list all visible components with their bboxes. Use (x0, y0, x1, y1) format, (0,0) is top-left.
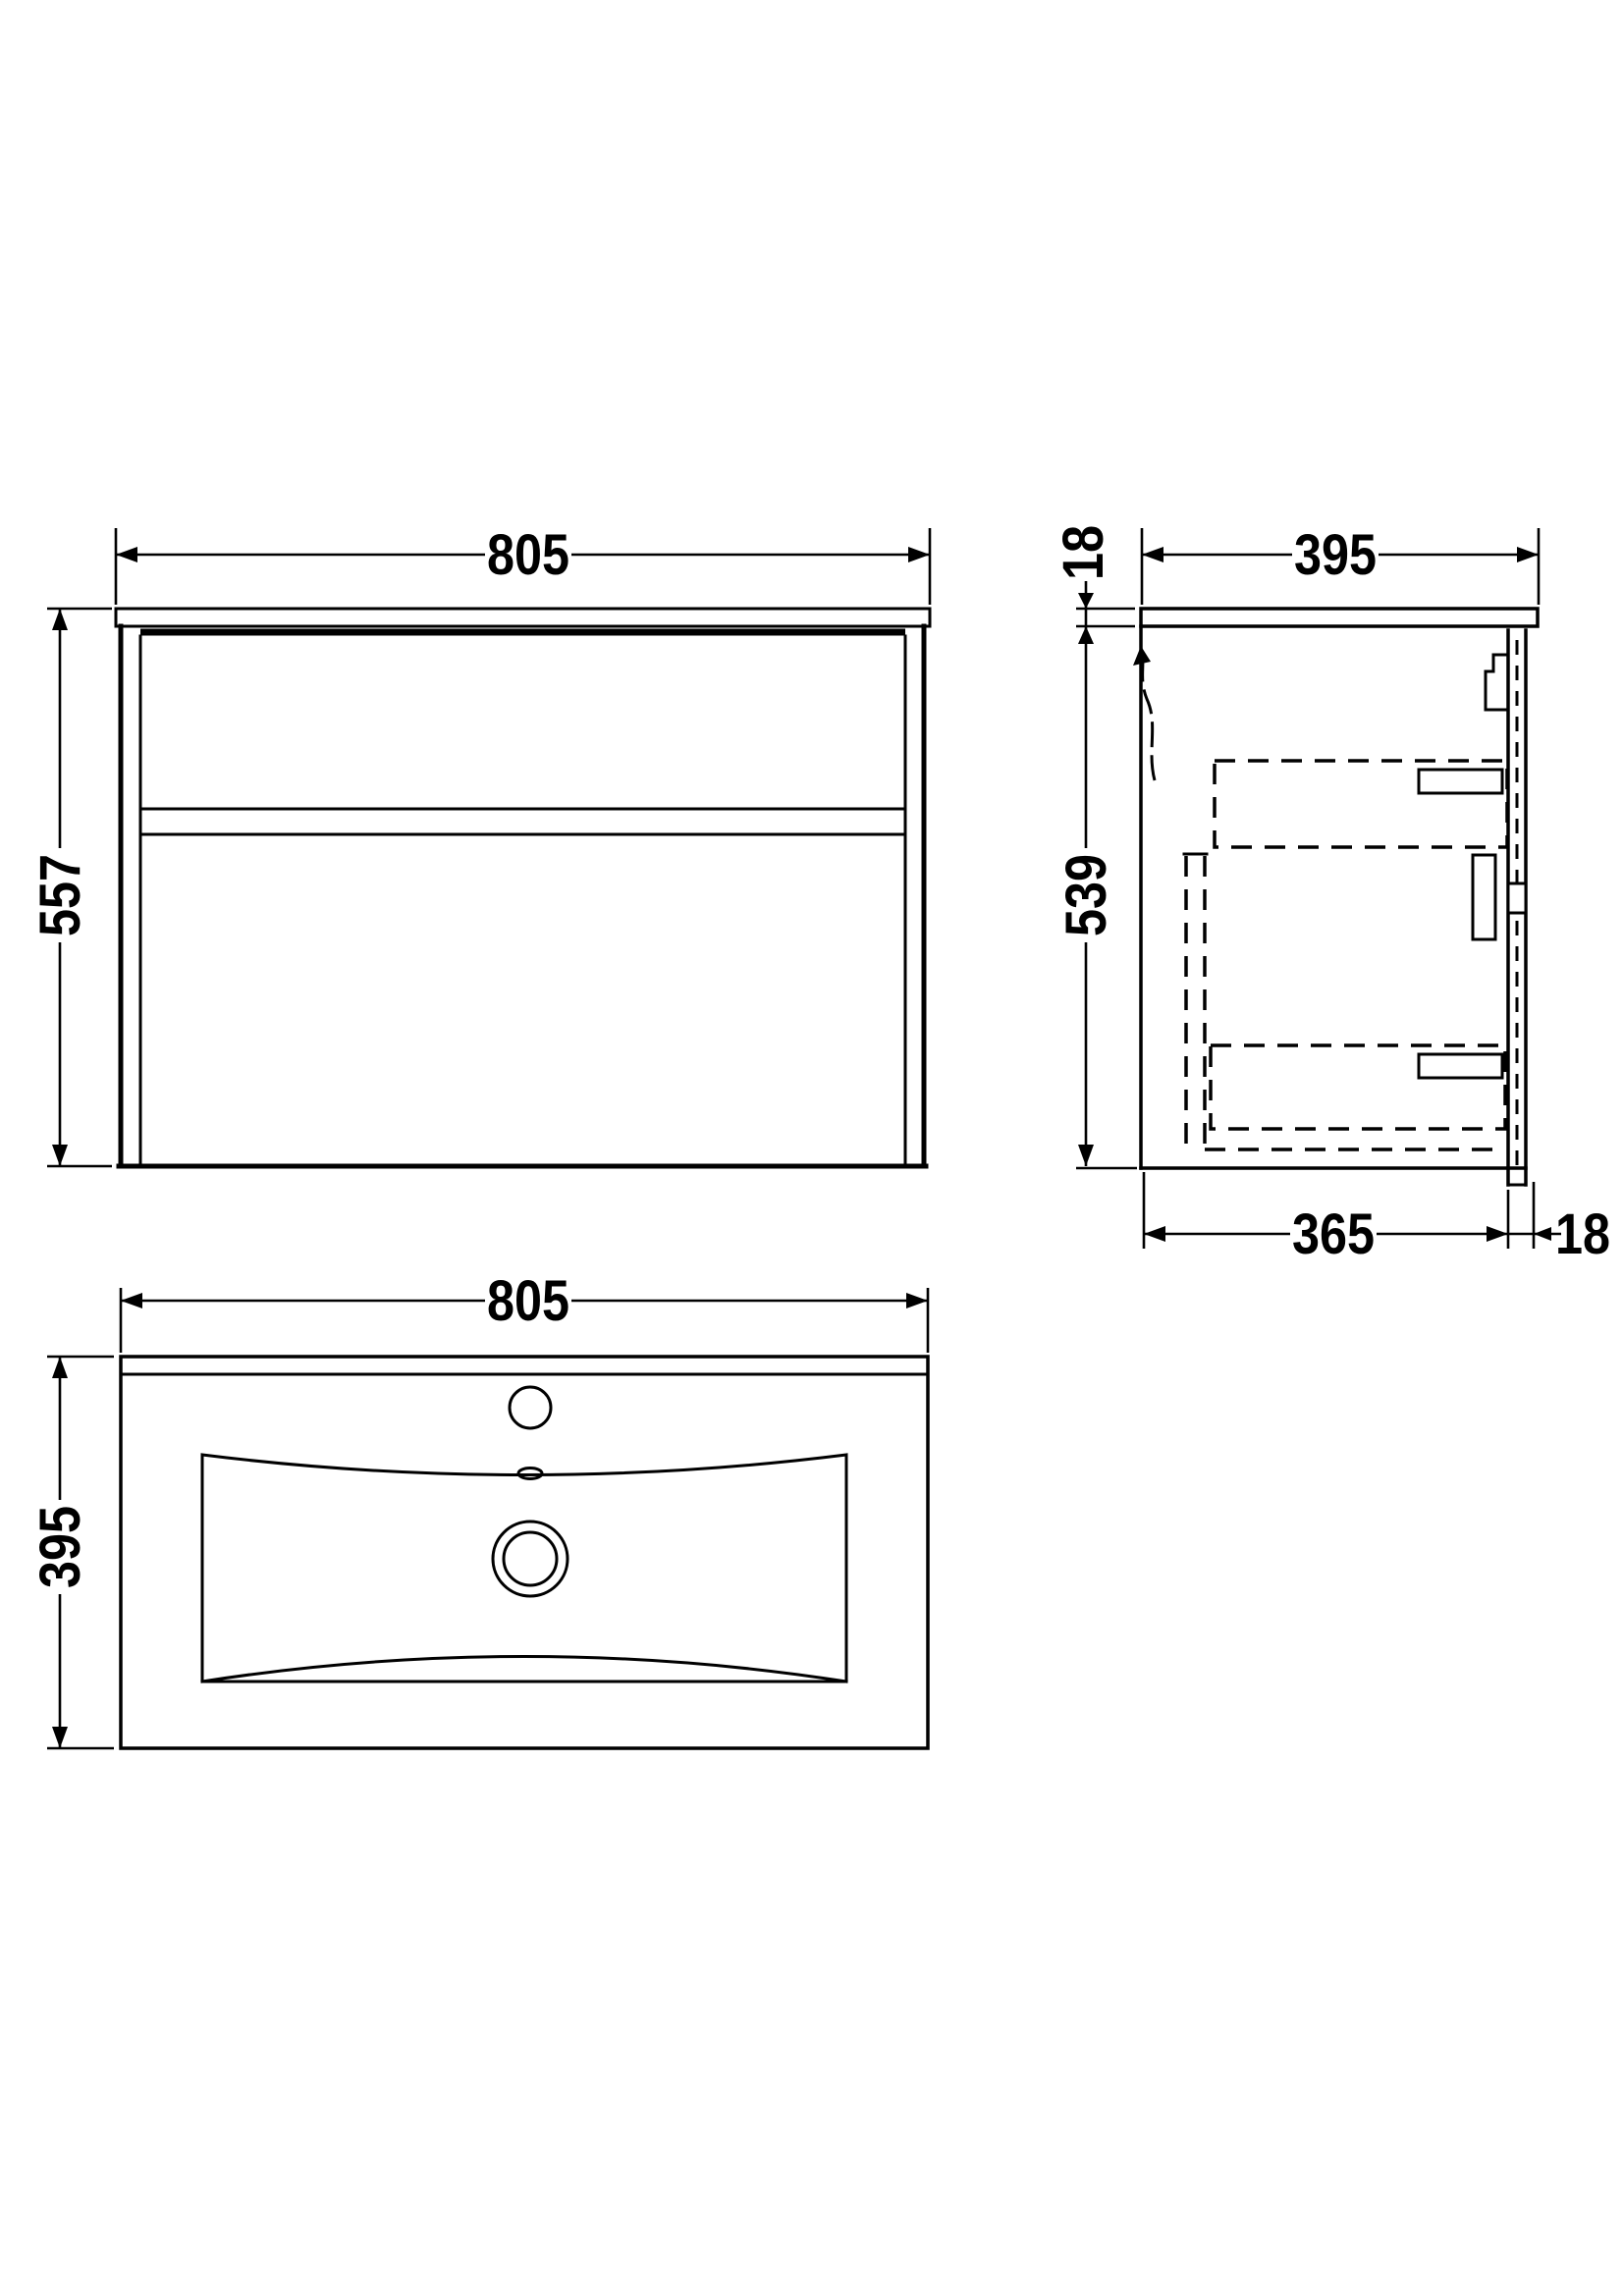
arrowhead (1133, 646, 1151, 666)
basin-bowl-outline (202, 1455, 846, 1682)
plan-basin-top (121, 1357, 928, 1748)
side-bottom-depth-dimension: 365 (1144, 1172, 1508, 1266)
side-depth-label: 395 (1294, 523, 1377, 587)
back-panel-fixing (1508, 883, 1526, 913)
arrowhead (908, 547, 930, 562)
waste-drain-inner (504, 1532, 557, 1585)
side-height-dimension: 539 (1055, 581, 1137, 1168)
front-height-label: 557 (28, 854, 92, 936)
side-back-gap-dimension: 18 (1508, 1182, 1610, 1266)
upper-drawer-runner (1419, 770, 1502, 793)
side-bottom-depth-label: 365 (1292, 1202, 1375, 1266)
plan-width-label: 805 (487, 1269, 569, 1333)
arrowhead (1487, 1226, 1508, 1242)
plan-depth-label: 395 (28, 1506, 92, 1588)
arrowhead (52, 609, 68, 630)
arrowhead (116, 547, 137, 562)
technical-drawing: 805 557 (0, 0, 1623, 2296)
arrowhead (1078, 1145, 1094, 1166)
arrowhead (906, 1293, 928, 1308)
basin-outer-rim (121, 1357, 928, 1748)
front-cabinet (116, 609, 930, 1166)
basin-bowl-bottom-curve (202, 1657, 846, 1682)
tap-hole (510, 1387, 551, 1428)
arrowhead (52, 1727, 68, 1748)
arrowhead (1534, 1227, 1551, 1241)
arrowhead (1144, 1226, 1165, 1242)
front-width-dimension: 805 (116, 523, 930, 605)
opening-direction-arrow (1133, 646, 1155, 780)
front-countertop (116, 609, 930, 626)
side-back-gap-label: 18 (1555, 1202, 1610, 1266)
arrowhead (1142, 547, 1163, 562)
arrowhead (52, 1357, 68, 1378)
front-height-dimension: 557 (28, 609, 112, 1166)
side-thickness-dimension: 18 (1052, 525, 1135, 644)
wall-bracket-lower (1473, 855, 1495, 939)
side-height-label: 539 (1055, 854, 1118, 936)
front-width-label: 805 (487, 523, 569, 587)
wall-bracket-upper (1486, 655, 1508, 710)
arrowhead (1517, 547, 1539, 562)
lower-drawer-runner (1419, 1054, 1502, 1078)
side-thickness-label: 18 (1052, 525, 1115, 580)
front-view: 805 557 (28, 523, 930, 1166)
side-countertop (1141, 609, 1538, 626)
plan-depth-dimension: 395 (28, 1357, 114, 1748)
side-depth-dimension: 395 (1142, 523, 1539, 605)
side-cabinet (1133, 609, 1538, 1185)
arrowhead (121, 1293, 142, 1308)
plan-width-dimension: 805 (121, 1269, 928, 1353)
arrow-tail (1142, 654, 1155, 780)
side-view: 395 18 539 (1052, 523, 1610, 1266)
arrowhead (52, 1145, 68, 1166)
plan-view: 805 395 (28, 1269, 928, 1748)
